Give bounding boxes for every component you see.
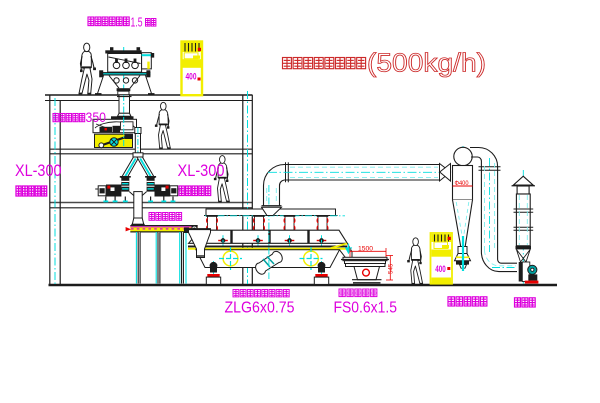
svg-text:FS0.6x1.5: FS0.6x1.5 (334, 300, 398, 317)
svg-text:ZLG6x0.75: ZLG6x0.75 (225, 300, 295, 317)
svg-text:XL-300: XL-300 (15, 161, 62, 180)
svg-text:1500: 1500 (358, 245, 373, 252)
svg-text:1.5: 1.5 (131, 15, 143, 30)
svg-text:350: 350 (86, 110, 107, 125)
svg-text:545: 545 (388, 263, 395, 274)
svg-text:400: 400 (435, 264, 446, 274)
svg-text:XL-300: XL-300 (178, 161, 225, 180)
svg-text:(500kg/h): (500kg/h) (367, 48, 486, 78)
svg-text:400: 400 (186, 72, 197, 82)
